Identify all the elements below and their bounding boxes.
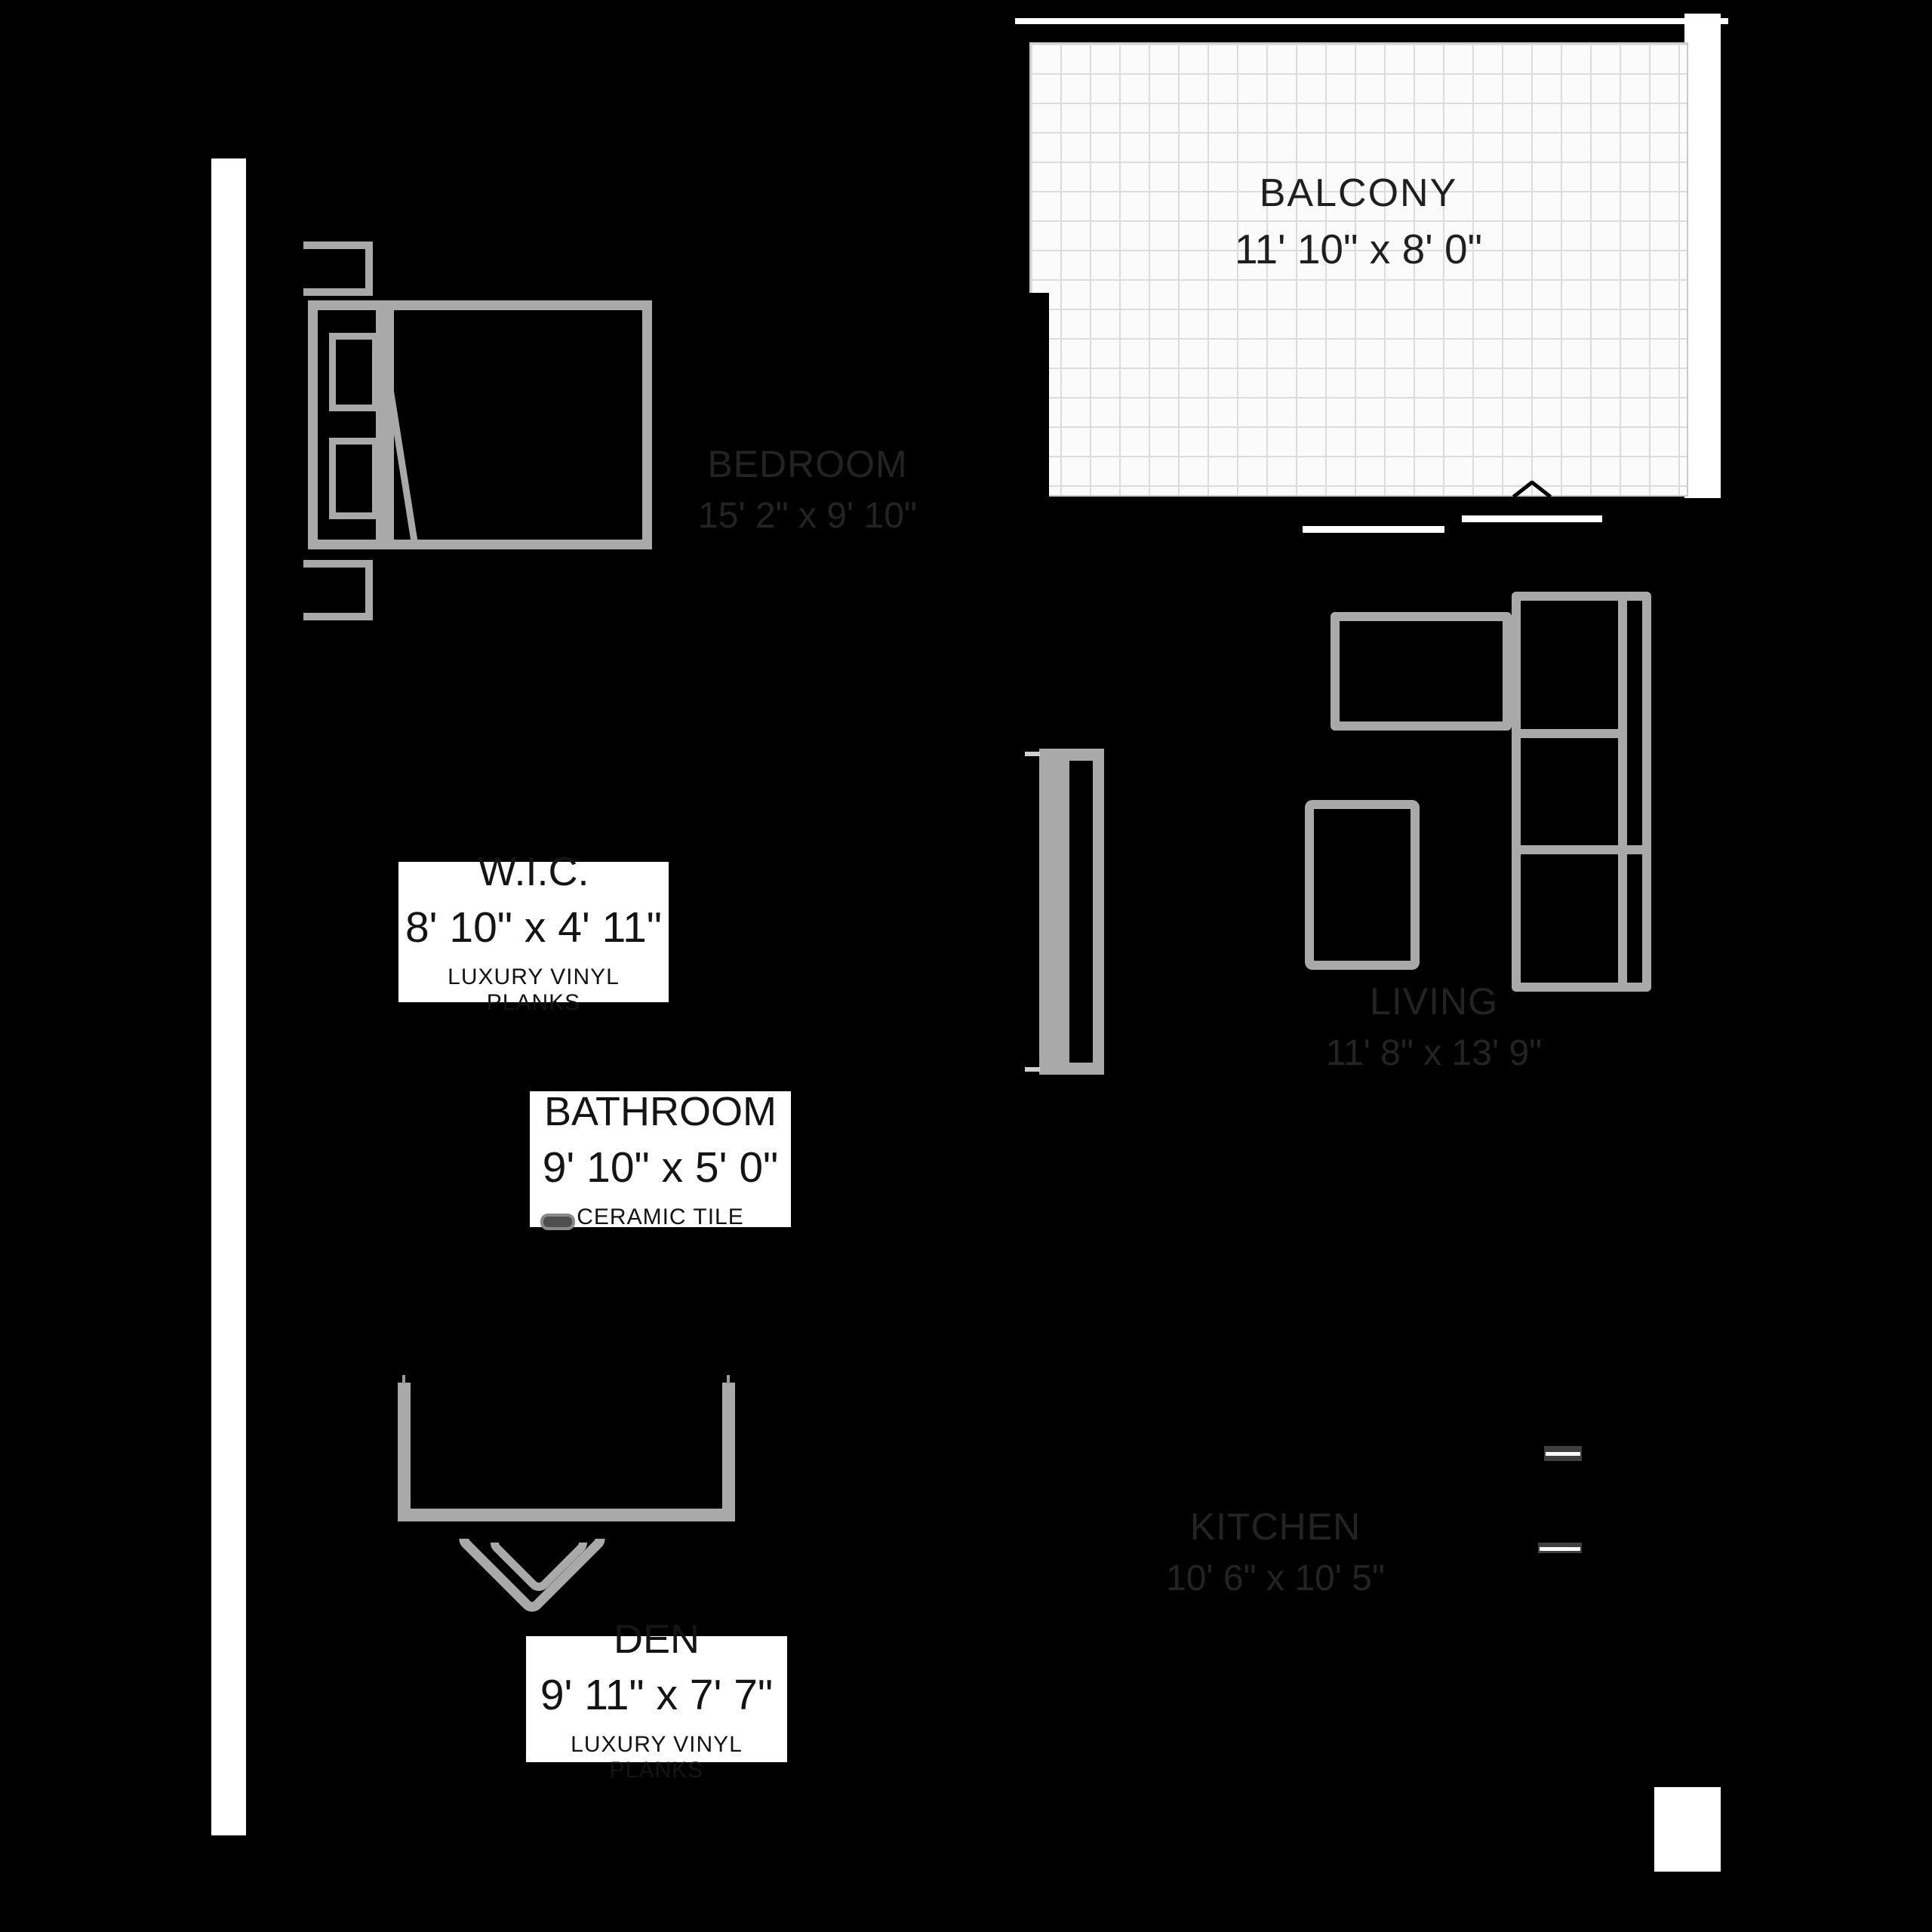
wic-name: W.I.C. [478,848,589,895]
right-exterior-wall [1684,14,1721,498]
bathroom-name: BATHROOM [544,1088,777,1135]
balcony-door-wall-segment-2 [1462,515,1602,522]
pillow [329,438,379,519]
sofa-seat-divider [1518,729,1621,738]
balcony-left-wall-step [1023,293,1049,498]
den-name: DEN [614,1616,700,1663]
kitchen-appliance-handle [1538,1543,1582,1553]
bedroom-name: BEDROOM [664,442,951,486]
den-desk-left-side [398,1383,411,1520]
bedroom-dimensions: 15' 2" x 9' 10" [664,495,951,537]
bathroom-floor-type: CERAMIC TILE [577,1204,744,1230]
den-label-box: DEN 9' 11" x 7' 7" LUXURY VINYL PLANKS [526,1636,787,1762]
bathroom-dimensions: 9' 10" x 5' 0" [543,1143,779,1192]
den-dimensions: 9' 11" x 7' 7" [540,1670,773,1720]
kitchen-label: KITCHEN 10' 6" x 10' 5" [1117,1505,1434,1599]
pocket-door-slot [1069,761,1093,1063]
desk-tick [402,1375,405,1384]
left-exterior-wall [211,158,246,1835]
kitchen-appliance-handle [1544,1446,1582,1461]
balcony-label: BALCONY 11' 10" x 8' 0" [1177,171,1540,273]
bathroom-fixture [540,1214,575,1230]
den-desk-right-side [722,1383,735,1521]
wic-label-box: W.I.C. 8' 10" x 4' 11" LUXURY VINYL PLAN… [398,862,669,1002]
living-dimensions: 11' 8" x 13' 9" [1283,1032,1585,1074]
balcony-door-wall-segment-1 [1303,526,1444,533]
nightstand [303,560,373,620]
handle-highlight [1540,1547,1580,1551]
den-floor-type: LUXURY VINYL PLANKS [526,1732,787,1783]
living-label: LIVING 11' 8" x 13' 9" [1283,980,1585,1074]
handle-highlight [1546,1452,1580,1456]
kitchen-dimensions: 10' 6" x 10' 5" [1117,1558,1434,1599]
bathroom-label-box: BATHROOM 9' 10" x 5' 0" CERAMIC TILE [530,1091,791,1227]
pillow [329,333,379,411]
balcony-dimensions: 11' 10" x 8' 0" [1177,225,1540,273]
living-name: LIVING [1283,980,1585,1023]
sofa-backrest-line [1618,598,1627,986]
sofa-sectional [1512,592,1651,992]
nightstand [303,241,373,296]
bottom-right-wall-block [1654,1787,1721,1872]
kitchen-name: KITCHEN [1117,1505,1434,1549]
door-jamb-tick [1025,1067,1040,1072]
balcony-top-wall [1015,18,1728,24]
floor-plan: BALCONY 11' 10" x 8' 0" BEDROOM 15' 2" x… [0,0,1932,1932]
desk-tick [727,1375,730,1384]
bedroom-label: BEDROOM 15' 2" x 9' 10" [664,442,951,537]
ottoman [1305,800,1420,970]
door-jamb-tick [1025,752,1040,756]
sofa-chaise [1331,612,1512,731]
wic-dimensions: 8' 10" x 4' 11" [405,903,662,952]
wic-floor-type: LUXURY VINYL PLANKS [398,964,669,1016]
balcony-name: BALCONY [1177,171,1540,216]
sofa-seat-divider [1518,845,1647,854]
